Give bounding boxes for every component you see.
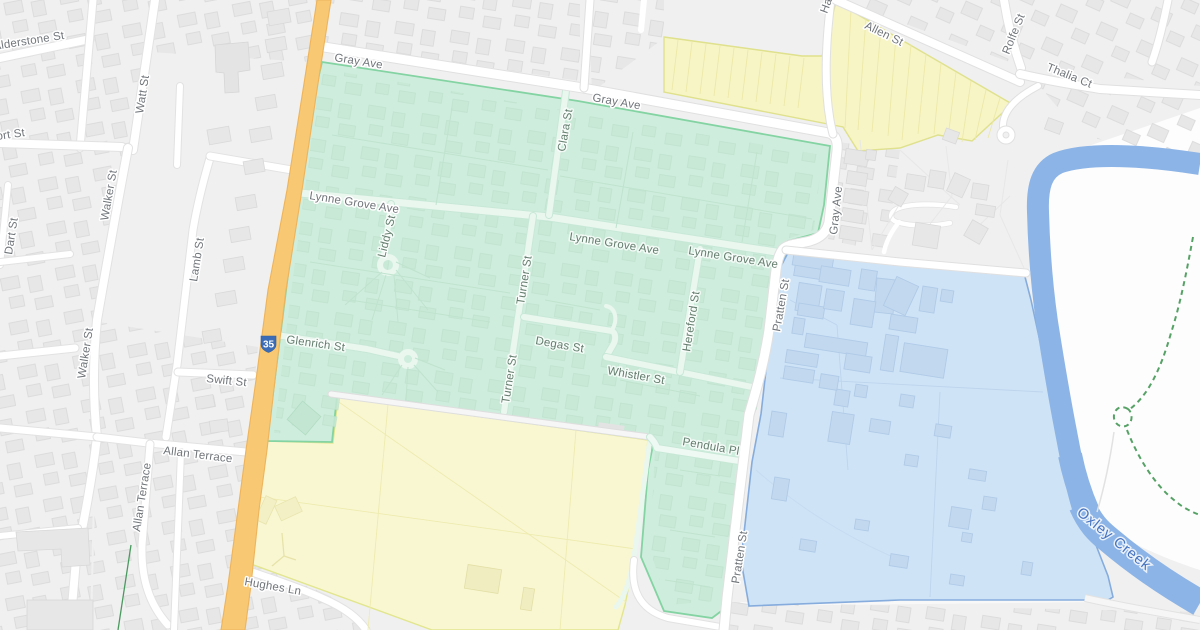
svg-text:35: 35 xyxy=(263,340,275,351)
